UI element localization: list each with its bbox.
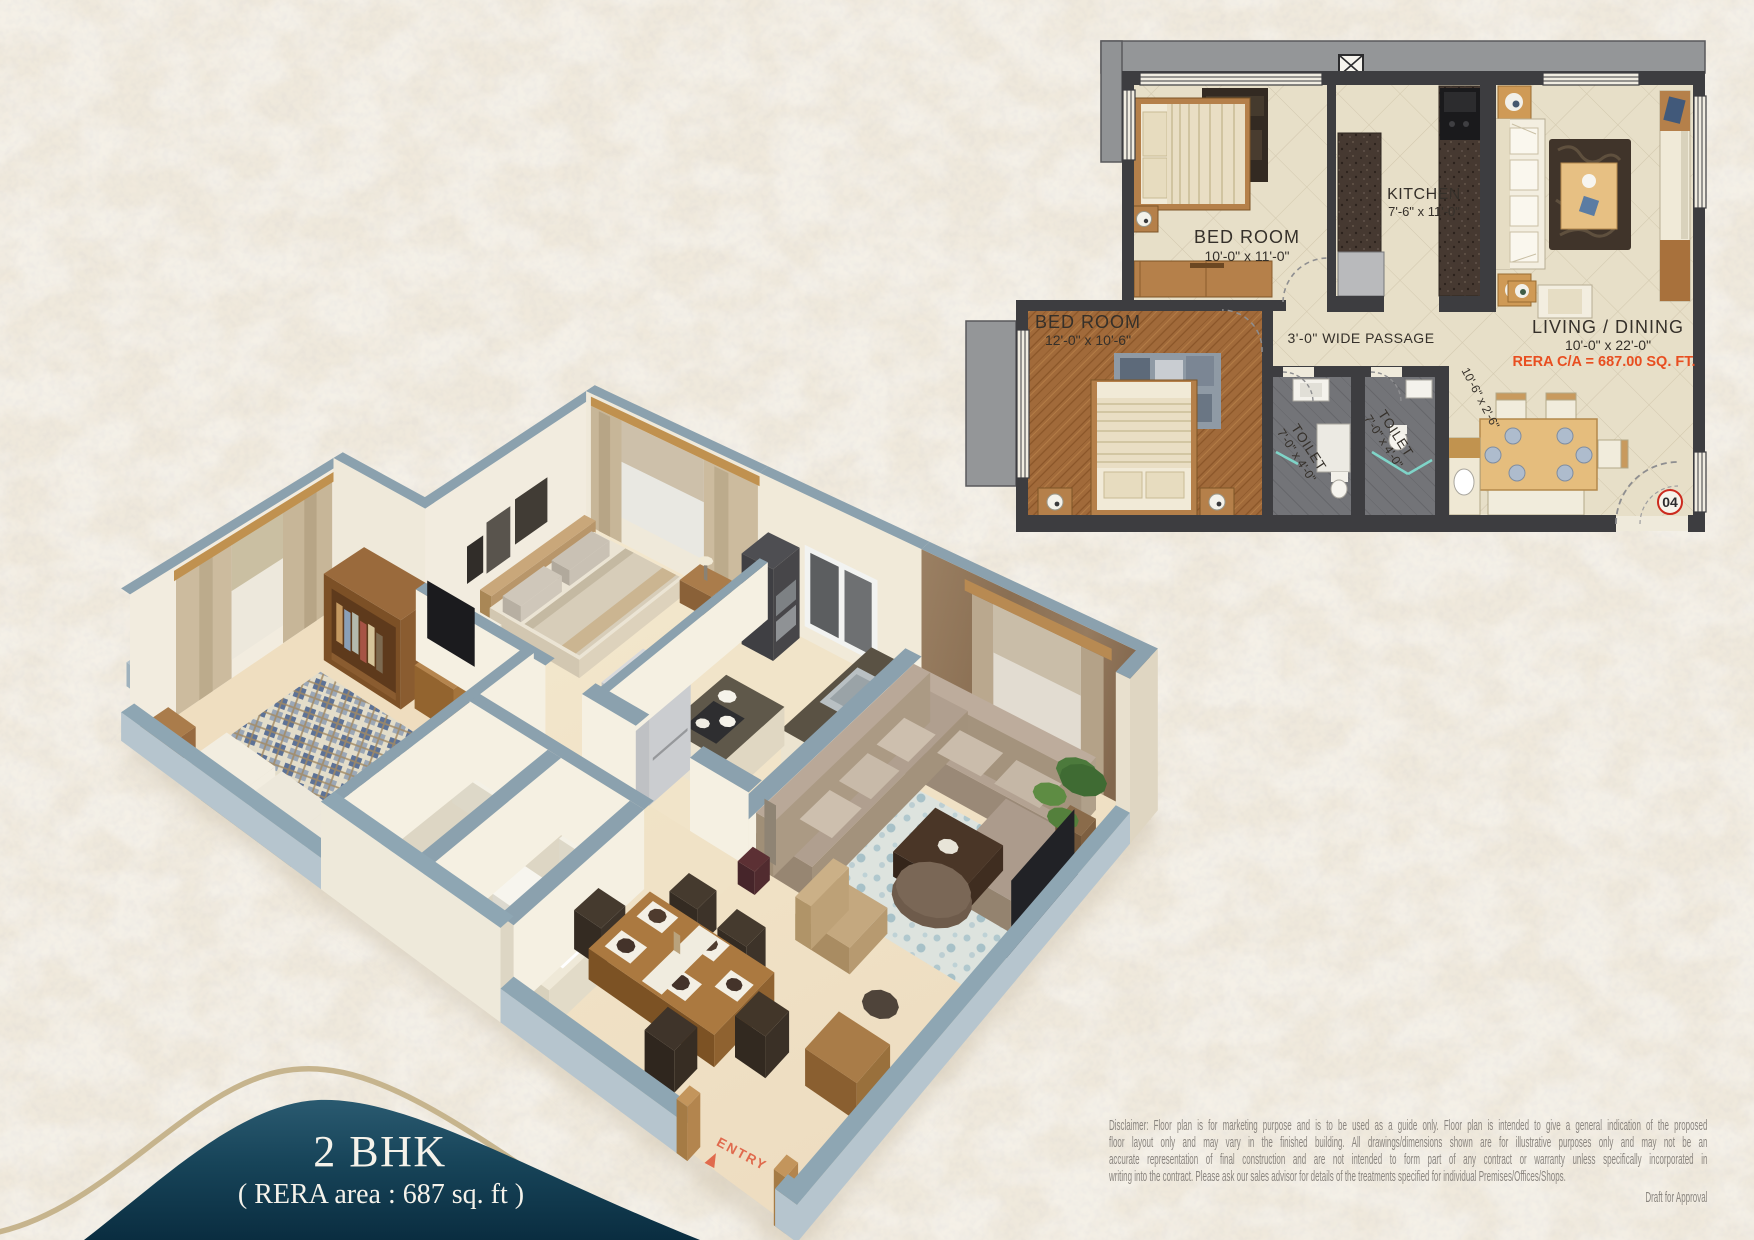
- svg-text:10'-0" x 11'-0": 10'-0" x 11'-0": [1204, 248, 1289, 264]
- svg-text:04: 04: [1662, 494, 1678, 510]
- svg-text:BED ROOM: BED ROOM: [1194, 227, 1300, 247]
- svg-text:( RERA area : 687 sq. ft ): ( RERA area : 687 sq. ft ): [238, 1179, 524, 1210]
- svg-text:3'-0" WIDE PASSAGE: 3'-0" WIDE PASSAGE: [1287, 330, 1434, 346]
- svg-text:10'-0" x 22'-0": 10'-0" x 22'-0": [1565, 337, 1651, 353]
- svg-text:7'-6" x 11'-0": 7'-6" x 11'-0": [1388, 204, 1460, 219]
- svg-text:LIVING / DINING: LIVING / DINING: [1532, 317, 1684, 337]
- svg-text:RERA C/A = 687.00 SQ. FT.: RERA C/A = 687.00 SQ. FT.: [1512, 354, 1695, 370]
- svg-text:BED ROOM: BED ROOM: [1035, 312, 1141, 332]
- svg-text:12'-0" x 10'-6": 12'-0" x 10'-6": [1045, 332, 1131, 348]
- svg-text:KITCHEN: KITCHEN: [1387, 186, 1461, 203]
- svg-text:2 BHK: 2 BHK: [313, 1127, 446, 1176]
